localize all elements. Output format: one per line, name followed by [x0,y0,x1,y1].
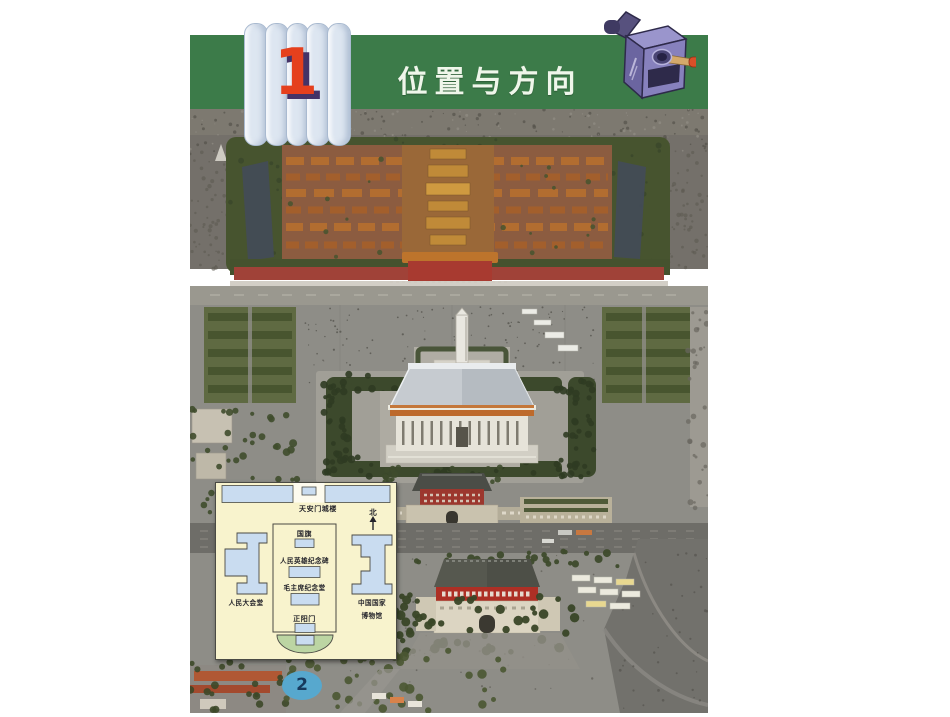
pencil-sharpener-icon [596,6,696,108]
inset-map-tiananmen-square: 天安门城楼 北 国旗 人民英雄纪念碑 毛主席纪念堂 正阳门 人民大会堂 中国国家… [215,482,397,660]
page-number: 2 [296,675,308,695]
taihe-hall [426,183,470,195]
textbook-page: 位置与方向 1 [0,0,950,713]
east-garden [602,307,694,403]
map-tiananmen-gate-symbol [302,487,316,495]
inset-map-illustration: 天安门城楼 北 国旗 人民英雄纪念碑 毛主席纪念堂 正阳门 人民大会堂 中国国家… [215,482,397,660]
map-label-museum-line1: 中国国家 [358,598,386,607]
map-label-great-hall: 人民大会堂 [229,598,264,607]
map-label-north: 北 [369,507,377,517]
page-number-badge: 2 [282,671,322,700]
map-north-wall-right [325,486,390,503]
map-label-heroes-monument: 人民英雄纪念碑 [280,556,329,565]
map-arrow-tower-symbol [296,636,314,646]
map-label-flag: 国旗 [297,529,312,538]
crank-knob [604,20,620,34]
map-north-wall-left [222,486,293,503]
map-heroes-monument-symbol [289,567,320,578]
unit-number: 1 [244,41,348,105]
pencil-eraser [689,57,696,67]
map-zhengyangmen-symbol [295,624,315,633]
forbidden-city [282,145,612,263]
sharpener-hole-inner [657,53,667,61]
map-mao-memorial-symbol [291,594,319,606]
pencil-sharpener-illustration [596,6,696,108]
map-flag-symbol [295,539,314,548]
map-label-tiananmen: 天安门城楼 [299,504,337,513]
map-label-museum-line2: 博物馆 [362,611,383,620]
map-label-mao-memorial: 毛主席纪念堂 [284,583,326,592]
west-garden [204,307,296,403]
mao-memorial-hall [316,363,596,483]
map-label-zhengyangmen: 正阳门 [293,614,316,623]
unit-number-badge: 1 [244,23,348,144]
